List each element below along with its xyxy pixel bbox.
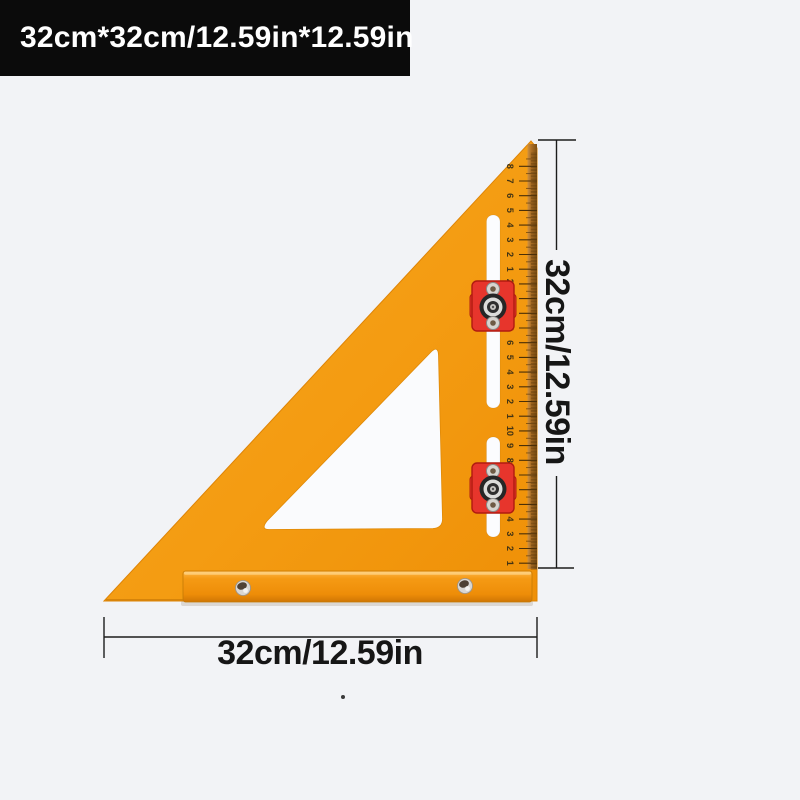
- ruler-mark-number: 6: [505, 193, 515, 198]
- clamp-knob-pin: [492, 306, 494, 308]
- triangle-ruler: 123456789101234567892012345678: [104, 141, 537, 606]
- horizontal-dimension-label: 32cm/12.59in: [217, 634, 423, 672]
- ruler-mark-number: 9: [505, 443, 515, 448]
- ruler-mark-number: 4: [505, 370, 515, 376]
- ruler-mark-number: 6: [505, 340, 515, 345]
- ruler-mark-number: 2: [505, 252, 515, 257]
- ruler-mark-number: 8: [505, 164, 515, 169]
- ruler-mark-number: 5: [505, 355, 515, 360]
- ruler-mark-number: 4: [505, 517, 515, 523]
- vertical-dimension: 32cm/12.59in: [538, 140, 576, 568]
- clamp-upper: [470, 281, 516, 331]
- clamp-lower: [470, 463, 516, 513]
- ruler-mark-number: 7: [505, 178, 515, 183]
- ruler-mark-number: 10: [505, 426, 515, 436]
- ruler-mark-number: 4: [505, 223, 515, 229]
- clamp-screw-bottom-center: [490, 320, 496, 326]
- base-bar-highlight: [184, 572, 531, 575]
- ruler-mark-number: 2: [505, 546, 515, 551]
- horizontal-dimension: 32cm/12.59in: [104, 617, 537, 672]
- ruler-mark-number: 1: [505, 267, 515, 272]
- ruler-edge-strip: [528, 144, 538, 569]
- base-bar-screw-right: [458, 579, 473, 594]
- size-badge-label: 32cm*32cm/12.59in*12.59in: [20, 21, 414, 55]
- ruler-mark-number: 3: [505, 531, 515, 536]
- clamp-screw-top-center: [490, 286, 496, 292]
- ruler-mark-number: 8: [505, 458, 515, 463]
- base-bar: [181, 571, 533, 606]
- vertical-dimension-label: 32cm/12.59in: [538, 259, 576, 465]
- speck-dot: [341, 695, 345, 699]
- ruler-mark-number: 2: [505, 399, 515, 404]
- product-image: 123456789101234567892012345678: [0, 0, 800, 800]
- size-badge: 32cm*32cm/12.59in*12.59in: [0, 0, 410, 76]
- ruler-mark-number: 5: [505, 208, 515, 213]
- ruler-mark-number: 1: [505, 561, 515, 566]
- ruler-mark-number: 1: [505, 414, 515, 419]
- ruler-mark-number: 3: [505, 237, 515, 242]
- ruler-mark-number: 3: [505, 384, 515, 389]
- clamp-screw-bottom-center: [490, 502, 496, 508]
- clamp-screw-top-center: [490, 468, 496, 474]
- base-bar-screw-left: [236, 581, 251, 596]
- product-scene: 123456789101234567892012345678: [0, 0, 800, 800]
- clamp-knob-pin: [492, 488, 494, 490]
- triangle-body: [104, 141, 537, 601]
